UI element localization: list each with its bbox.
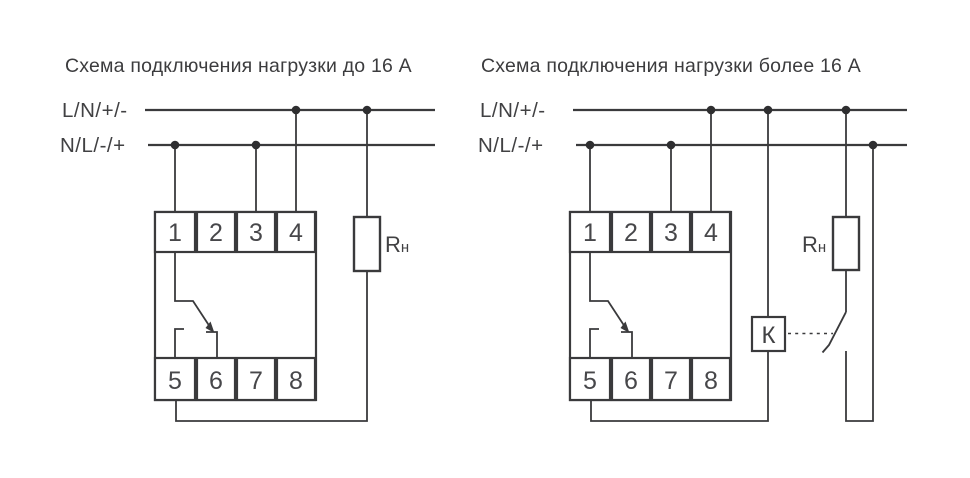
contact-common-blade: [590, 252, 627, 330]
terminal-row-bottom: 5 6 7 8: [155, 358, 315, 400]
terminal-cell-6: 6: [612, 358, 650, 400]
junction-dot: [764, 106, 773, 115]
junction-dot: [171, 141, 180, 150]
terminal-number: 3: [664, 219, 678, 247]
junction-dot: [586, 141, 595, 150]
bus-top-label: L/N/+/-: [62, 99, 128, 122]
terminal-row-top: 1 2 3 4: [570, 212, 730, 252]
terminal-number: 1: [168, 219, 182, 247]
terminal-cell-2: 2: [612, 212, 650, 252]
junction-dot: [363, 106, 372, 115]
terminal-cell-4: 4: [277, 212, 315, 252]
terminal-row-bottom: 5 6 7 8: [570, 358, 730, 400]
load-label: Rн: [385, 232, 409, 257]
terminal-number: 1: [583, 219, 597, 247]
terminal-number: 4: [289, 219, 303, 247]
junction-dot: [292, 106, 301, 115]
terminal-number: 7: [249, 367, 263, 395]
resistor-body: [354, 217, 380, 271]
junction-dot: [667, 141, 676, 150]
relay-contact-symbol: [590, 252, 632, 357]
terminal-number: 4: [704, 219, 718, 247]
diagram-title: Схема подключения нагрузки до 16 А: [65, 55, 412, 77]
terminal-cell-3: 3: [652, 212, 690, 252]
diagram-load-over-16a: Схема подключения нагрузки более 16 А L/…: [478, 55, 907, 421]
terminal-number: 2: [209, 219, 223, 247]
contact-common-blade: [175, 252, 212, 330]
terminal-cell-4: 4: [692, 212, 730, 252]
terminal-feed-wires: [590, 110, 711, 213]
load-resistor: Rн: [802, 217, 859, 270]
resistor-body: [833, 217, 859, 270]
terminal-number: 8: [289, 367, 303, 395]
terminal-number: 3: [249, 219, 263, 247]
wiring-diagram-page: Схема подключения нагрузки до 16 А L/N/+…: [0, 0, 970, 478]
bus-bottom-label: N/L/-/+: [60, 134, 126, 157]
terminal-cell-7: 7: [237, 358, 275, 400]
terminal-number: 7: [664, 367, 678, 395]
terminal-cell-6: 6: [197, 358, 235, 400]
bus-bottom-label: N/L/-/+: [478, 134, 544, 157]
contact-fixed-5: [590, 329, 599, 357]
contact-fixed-5: [175, 329, 184, 357]
terminal-number: 8: [704, 367, 718, 395]
junction-dot: [842, 106, 851, 115]
terminal-cell-7: 7: [652, 358, 690, 400]
junction-dot: [252, 141, 261, 150]
contact-fixed-6: [206, 332, 217, 357]
terminal-number: 6: [209, 367, 223, 395]
junction-dot: [707, 106, 716, 115]
terminal-number: 2: [624, 219, 638, 247]
wiring-diagram-svg: Схема подключения нагрузки до 16 А L/N/+…: [0, 0, 970, 478]
terminal-cell-1: 1: [155, 212, 195, 252]
terminal-row-top: 1 2 3 4: [155, 212, 315, 252]
terminal-feed-wires: [175, 110, 296, 213]
load-wire-return: [846, 146, 873, 421]
terminal-cell-5: 5: [155, 358, 195, 400]
contact-fixed-6: [621, 332, 632, 357]
contactor-label: К: [762, 322, 776, 349]
load-resistor: Rн: [354, 217, 409, 271]
junction-dot: [869, 141, 878, 150]
terminal-number: 5: [583, 367, 597, 395]
relay-contact-symbol: [175, 252, 217, 357]
contactor-switch-blade: [823, 312, 847, 353]
terminal-cell-2: 2: [197, 212, 235, 252]
bus-top-label: L/N/+/-: [480, 99, 546, 122]
terminal-cell-8: 8: [277, 358, 315, 400]
terminal-number: 5: [168, 367, 182, 395]
terminal-cell-3: 3: [237, 212, 275, 252]
load-label: Rн: [802, 232, 826, 257]
terminal-cell-1: 1: [570, 212, 610, 252]
terminal-number: 6: [624, 367, 638, 395]
terminal-cell-8: 8: [692, 358, 730, 400]
terminal-cell-5: 5: [570, 358, 610, 400]
contactor-coil: К: [752, 317, 785, 351]
diagram-title: Схема подключения нагрузки более 16 А: [481, 55, 861, 77]
diagram-load-up-to-16a: Схема подключения нагрузки до 16 А L/N/+…: [60, 55, 435, 421]
